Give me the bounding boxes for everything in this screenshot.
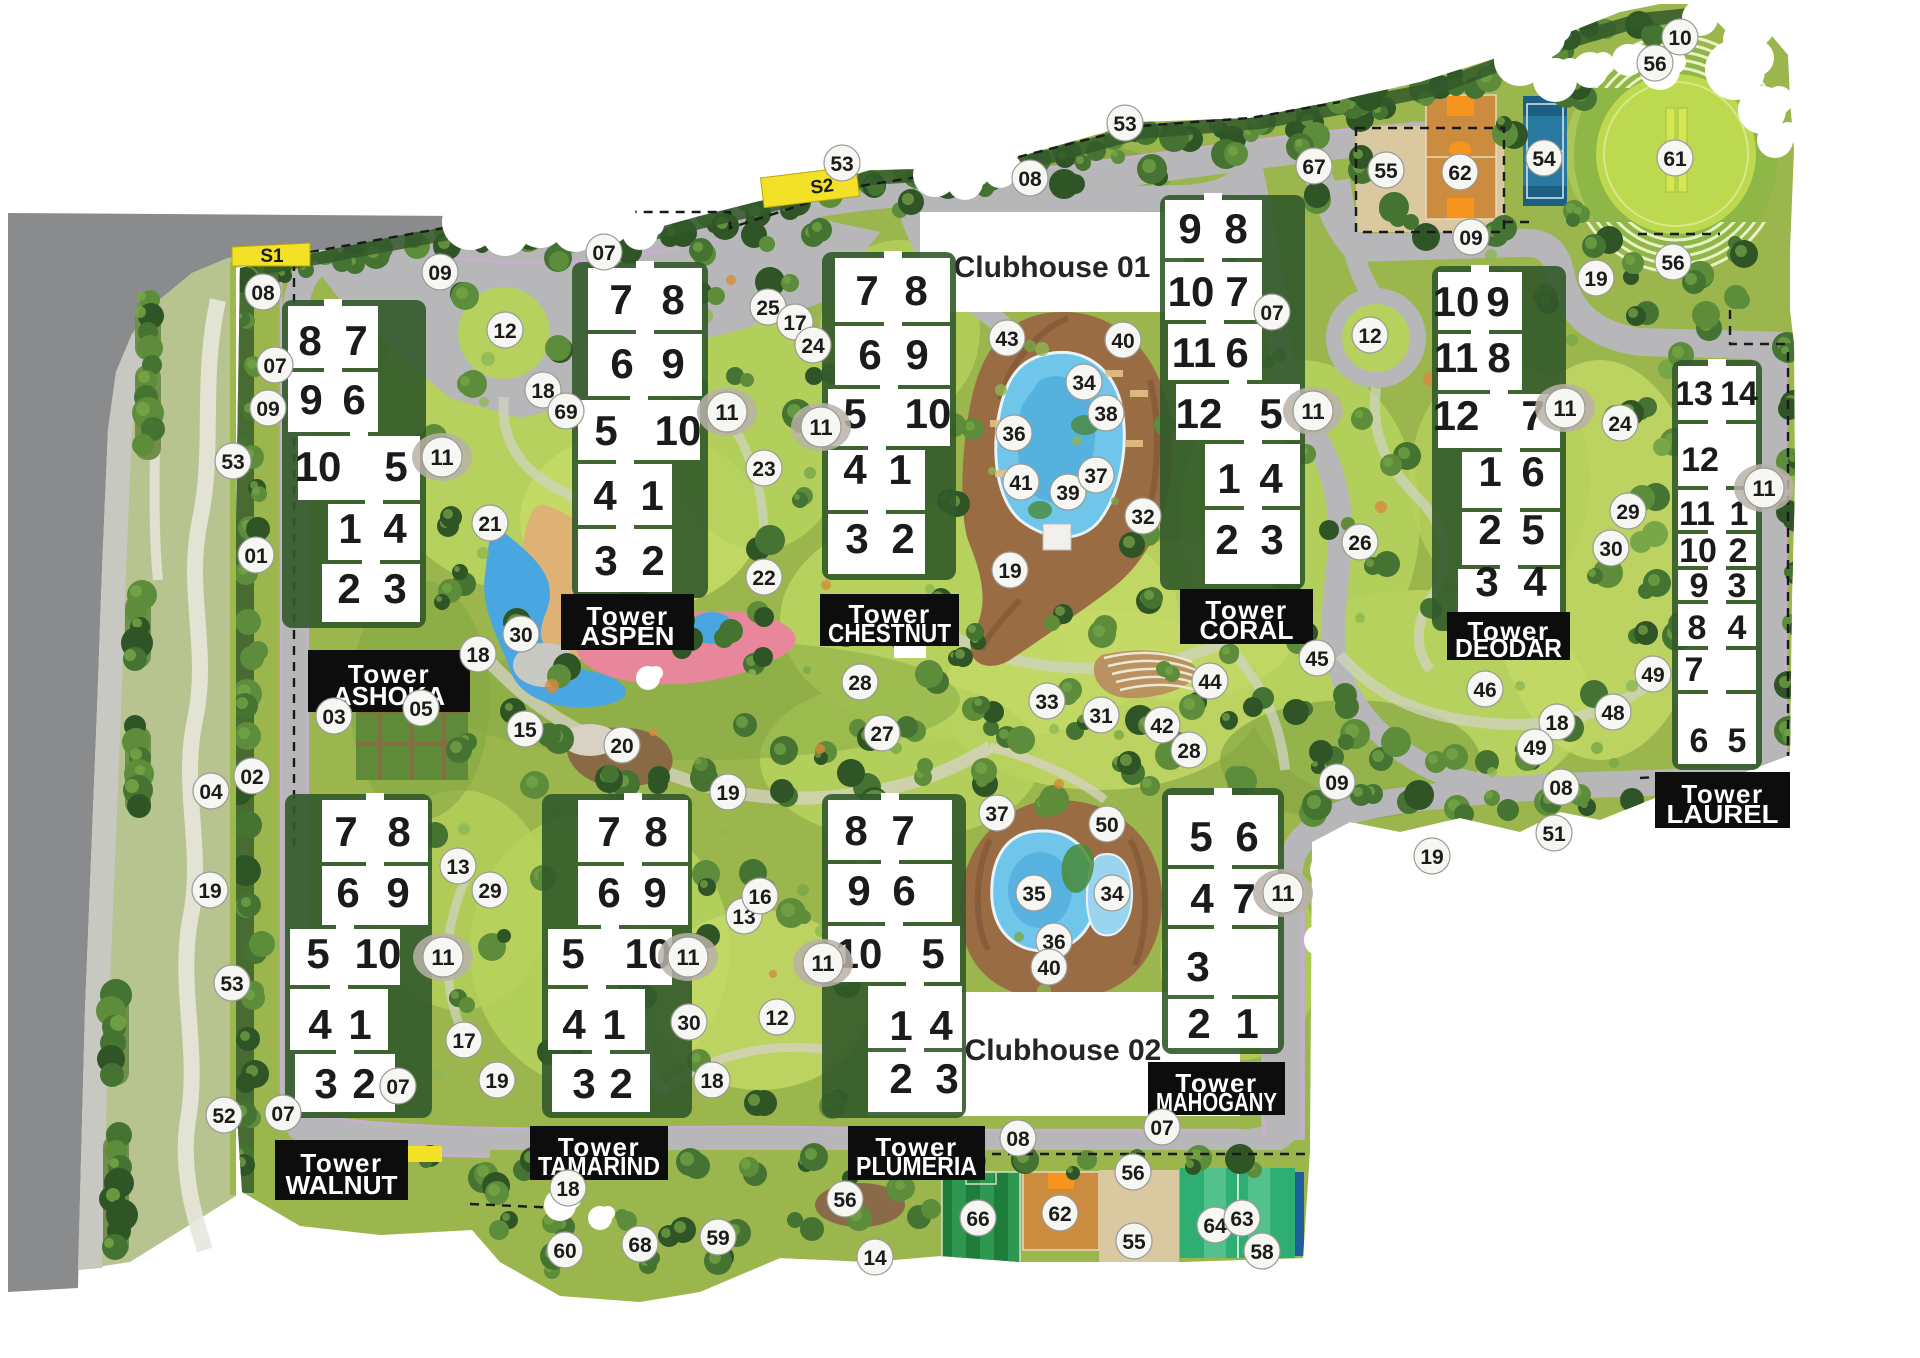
svg-text:42: 42 xyxy=(1150,715,1173,738)
svg-text:09: 09 xyxy=(428,262,451,285)
svg-text:28: 28 xyxy=(1177,740,1201,763)
svg-text:08: 08 xyxy=(1018,168,1042,191)
svg-text:07: 07 xyxy=(271,1103,294,1126)
svg-text:14: 14 xyxy=(863,1247,887,1270)
svg-text:10: 10 xyxy=(355,930,402,977)
svg-text:51: 51 xyxy=(1542,823,1566,846)
svg-text:30: 30 xyxy=(1599,538,1622,561)
svg-text:68: 68 xyxy=(628,1234,652,1257)
svg-text:2: 2 xyxy=(1215,516,1238,563)
svg-text:2: 2 xyxy=(1729,532,1748,570)
svg-text:07: 07 xyxy=(263,355,286,378)
svg-text:4: 4 xyxy=(1728,609,1747,647)
svg-text:3: 3 xyxy=(1260,516,1283,563)
svg-text:28: 28 xyxy=(848,672,872,695)
svg-text:6: 6 xyxy=(892,867,915,914)
svg-text:13: 13 xyxy=(1675,375,1713,413)
svg-text:1: 1 xyxy=(889,1002,912,1049)
svg-text:19: 19 xyxy=(716,782,739,805)
svg-text:03: 03 xyxy=(322,706,345,729)
svg-text:6: 6 xyxy=(858,331,881,378)
svg-text:34: 34 xyxy=(1072,372,1096,395)
svg-text:6: 6 xyxy=(1225,329,1248,376)
svg-text:6: 6 xyxy=(1690,722,1709,760)
svg-text:54: 54 xyxy=(1532,148,1556,171)
svg-text:MAHOGANY: MAHOGANY xyxy=(1156,1087,1277,1117)
svg-text:40: 40 xyxy=(1111,330,1134,353)
svg-text:49: 49 xyxy=(1523,737,1546,760)
svg-text:9: 9 xyxy=(1690,567,1709,605)
svg-text:11: 11 xyxy=(809,415,832,440)
svg-text:25: 25 xyxy=(756,297,780,320)
svg-text:1: 1 xyxy=(348,1001,371,1048)
svg-text:8: 8 xyxy=(387,808,410,855)
svg-text:3: 3 xyxy=(845,515,868,562)
svg-text:48: 48 xyxy=(1601,702,1625,725)
svg-text:11: 11 xyxy=(1434,334,1478,381)
svg-text:2: 2 xyxy=(609,1060,632,1107)
svg-text:11: 11 xyxy=(431,945,454,970)
svg-text:8: 8 xyxy=(644,808,667,855)
svg-text:7: 7 xyxy=(1685,651,1704,689)
svg-text:5: 5 xyxy=(1259,390,1282,437)
svg-text:07: 07 xyxy=(1150,1117,1173,1140)
svg-text:3: 3 xyxy=(314,1060,337,1107)
svg-text:3: 3 xyxy=(935,1055,958,1102)
svg-text:22: 22 xyxy=(752,567,775,590)
svg-text:53: 53 xyxy=(830,153,853,176)
svg-text:4: 4 xyxy=(308,1001,332,1048)
svg-text:11: 11 xyxy=(1301,399,1324,424)
svg-text:1: 1 xyxy=(640,472,663,519)
svg-text:10: 10 xyxy=(655,407,702,454)
svg-text:9: 9 xyxy=(1486,278,1509,325)
svg-text:02: 02 xyxy=(240,766,263,789)
svg-text:07: 07 xyxy=(1260,302,1283,325)
svg-text:69: 69 xyxy=(554,401,577,424)
svg-text:23: 23 xyxy=(752,458,775,481)
svg-text:32: 32 xyxy=(1131,506,1154,529)
svg-text:1: 1 xyxy=(1235,1000,1258,1047)
svg-text:8: 8 xyxy=(1688,609,1707,647)
svg-text:11: 11 xyxy=(430,445,453,470)
svg-text:12: 12 xyxy=(765,1007,788,1030)
svg-text:09: 09 xyxy=(1325,772,1348,795)
svg-text:56: 56 xyxy=(1661,252,1684,275)
svg-text:3: 3 xyxy=(383,565,406,612)
svg-text:05: 05 xyxy=(409,698,433,721)
svg-text:01: 01 xyxy=(244,545,268,568)
svg-text:40: 40 xyxy=(1037,957,1060,980)
svg-text:1: 1 xyxy=(888,446,911,493)
svg-text:3: 3 xyxy=(594,537,617,584)
svg-text:58: 58 xyxy=(1250,1241,1274,1264)
svg-text:3: 3 xyxy=(572,1060,595,1107)
svg-text:43: 43 xyxy=(995,328,1018,351)
svg-text:33: 33 xyxy=(1035,691,1058,714)
svg-text:50: 50 xyxy=(1095,814,1118,837)
svg-text:9: 9 xyxy=(386,869,409,916)
svg-text:8: 8 xyxy=(298,317,321,364)
svg-text:6: 6 xyxy=(610,340,633,387)
svg-text:18: 18 xyxy=(700,1070,724,1093)
svg-text:11: 11 xyxy=(715,400,738,425)
svg-text:31: 31 xyxy=(1089,705,1113,728)
svg-text:6: 6 xyxy=(336,869,359,916)
svg-text:12: 12 xyxy=(1358,325,1381,348)
svg-text:17: 17 xyxy=(452,1030,475,1053)
svg-text:37: 37 xyxy=(1084,465,1107,488)
svg-text:5: 5 xyxy=(384,443,407,490)
svg-text:16: 16 xyxy=(748,886,771,909)
svg-text:10: 10 xyxy=(1433,278,1480,325)
svg-text:19: 19 xyxy=(485,1070,508,1093)
svg-text:10: 10 xyxy=(905,390,952,437)
svg-text:29: 29 xyxy=(478,880,501,903)
svg-text:37: 37 xyxy=(985,803,1008,826)
svg-text:39: 39 xyxy=(1056,482,1079,505)
svg-text:14: 14 xyxy=(1720,375,1758,413)
svg-text:10: 10 xyxy=(1168,268,1215,315)
svg-text:7: 7 xyxy=(609,276,632,323)
svg-text:DEODAR: DEODAR xyxy=(1455,633,1562,663)
svg-text:2: 2 xyxy=(337,565,360,612)
svg-text:1: 1 xyxy=(338,505,361,552)
svg-text:8: 8 xyxy=(1487,334,1510,381)
svg-text:18: 18 xyxy=(556,1178,580,1201)
svg-text:Clubhouse 01: Clubhouse 01 xyxy=(954,251,1151,284)
svg-text:53: 53 xyxy=(221,451,244,474)
svg-text:13: 13 xyxy=(446,856,469,879)
svg-text:60: 60 xyxy=(553,1240,576,1263)
svg-text:CHESTNUT: CHESTNUT xyxy=(828,618,951,648)
svg-text:1: 1 xyxy=(1478,448,1501,495)
svg-text:09: 09 xyxy=(1459,227,1482,250)
svg-text:4: 4 xyxy=(383,505,407,552)
svg-text:S2: S2 xyxy=(809,175,835,199)
svg-text:2: 2 xyxy=(352,1060,375,1107)
svg-text:9: 9 xyxy=(643,869,666,916)
svg-text:6: 6 xyxy=(597,869,620,916)
svg-text:56: 56 xyxy=(1643,53,1666,76)
svg-text:4: 4 xyxy=(1190,875,1214,922)
svg-text:45: 45 xyxy=(1305,648,1329,671)
svg-text:8: 8 xyxy=(904,267,927,314)
svg-text:5: 5 xyxy=(921,930,944,977)
svg-text:7: 7 xyxy=(1225,268,1248,315)
svg-text:34: 34 xyxy=(1100,883,1124,906)
svg-text:12: 12 xyxy=(1433,392,1480,439)
svg-text:2: 2 xyxy=(1187,1000,1210,1047)
svg-text:18: 18 xyxy=(1545,712,1569,735)
svg-text:53: 53 xyxy=(1113,113,1136,136)
svg-text:6: 6 xyxy=(1235,813,1258,860)
svg-text:18: 18 xyxy=(466,644,490,667)
svg-text:30: 30 xyxy=(677,1012,700,1035)
svg-text:46: 46 xyxy=(1473,679,1496,702)
svg-text:11: 11 xyxy=(1752,476,1775,501)
svg-text:3: 3 xyxy=(1728,567,1747,605)
svg-text:67: 67 xyxy=(1302,156,1325,179)
svg-text:2: 2 xyxy=(891,515,914,562)
svg-text:6: 6 xyxy=(1521,448,1544,495)
svg-text:56: 56 xyxy=(1121,1162,1144,1185)
svg-text:7: 7 xyxy=(1232,875,1255,922)
svg-text:Clubhouse 02: Clubhouse 02 xyxy=(965,1034,1162,1067)
svg-text:1: 1 xyxy=(1217,455,1240,502)
svg-text:5: 5 xyxy=(306,930,329,977)
svg-text:8: 8 xyxy=(661,276,684,323)
svg-text:09: 09 xyxy=(256,398,279,421)
svg-text:08: 08 xyxy=(1006,1128,1030,1151)
svg-text:9: 9 xyxy=(661,340,684,387)
svg-text:12: 12 xyxy=(493,320,516,343)
svg-text:WALNUT: WALNUT xyxy=(286,1170,398,1200)
svg-text:4: 4 xyxy=(562,1001,586,1048)
svg-text:9: 9 xyxy=(1178,205,1201,252)
svg-text:3: 3 xyxy=(1186,943,1209,990)
svg-text:53: 53 xyxy=(220,973,243,996)
svg-text:55: 55 xyxy=(1122,1231,1146,1254)
svg-text:7: 7 xyxy=(334,808,357,855)
svg-text:08: 08 xyxy=(251,282,275,305)
svg-text:07: 07 xyxy=(386,1076,409,1099)
svg-text:1: 1 xyxy=(602,1001,625,1048)
svg-text:24: 24 xyxy=(1608,413,1632,436)
svg-text:2: 2 xyxy=(1478,506,1501,553)
svg-text:LAUREL: LAUREL xyxy=(1667,799,1779,829)
svg-text:29: 29 xyxy=(1616,501,1639,524)
svg-text:10: 10 xyxy=(1668,27,1691,50)
svg-text:19: 19 xyxy=(198,880,221,903)
svg-text:61: 61 xyxy=(1663,148,1687,171)
svg-text:08: 08 xyxy=(1549,777,1573,800)
svg-text:6: 6 xyxy=(342,376,365,423)
svg-text:19: 19 xyxy=(1584,268,1607,291)
svg-text:5: 5 xyxy=(1728,722,1747,760)
svg-text:8: 8 xyxy=(844,807,867,854)
svg-text:5: 5 xyxy=(561,930,584,977)
svg-text:19: 19 xyxy=(998,560,1021,583)
svg-text:21: 21 xyxy=(478,513,502,536)
svg-text:8: 8 xyxy=(1224,205,1247,252)
svg-text:62: 62 xyxy=(1448,162,1471,185)
svg-text:7: 7 xyxy=(891,807,914,854)
svg-text:3: 3 xyxy=(1475,558,1498,605)
svg-text:CORAL: CORAL xyxy=(1200,615,1294,645)
svg-text:7: 7 xyxy=(597,808,620,855)
svg-text:35: 35 xyxy=(1022,883,1046,906)
svg-text:62: 62 xyxy=(1048,1203,1071,1226)
svg-text:49: 49 xyxy=(1641,664,1664,687)
svg-text:30: 30 xyxy=(509,624,532,647)
svg-text:27: 27 xyxy=(870,723,893,746)
svg-text:9: 9 xyxy=(905,331,928,378)
svg-text:52: 52 xyxy=(212,1105,235,1128)
svg-text:38: 38 xyxy=(1094,403,1118,426)
svg-text:4: 4 xyxy=(929,1002,953,1049)
svg-text:07: 07 xyxy=(592,242,615,265)
svg-text:7: 7 xyxy=(344,317,367,364)
svg-text:5: 5 xyxy=(1189,813,1212,860)
svg-text:66: 66 xyxy=(966,1208,989,1231)
svg-text:63: 63 xyxy=(1230,1208,1253,1231)
svg-text:56: 56 xyxy=(833,1189,856,1212)
svg-text:5: 5 xyxy=(594,407,617,454)
svg-text:4: 4 xyxy=(1259,455,1283,502)
svg-text:9: 9 xyxy=(847,867,870,914)
svg-text:4: 4 xyxy=(1523,558,1547,605)
svg-text:24: 24 xyxy=(801,335,825,358)
svg-text:19: 19 xyxy=(1420,846,1443,869)
svg-text:11: 11 xyxy=(676,945,699,970)
svg-text:4: 4 xyxy=(843,446,867,493)
svg-text:04: 04 xyxy=(199,781,223,804)
svg-text:55: 55 xyxy=(1374,160,1398,183)
svg-text:4: 4 xyxy=(593,472,617,519)
svg-text:11: 11 xyxy=(811,951,834,976)
svg-text:12: 12 xyxy=(1681,441,1719,479)
svg-text:41: 41 xyxy=(1009,472,1033,495)
svg-text:11: 11 xyxy=(1553,396,1576,421)
svg-text:11: 11 xyxy=(1172,329,1216,376)
svg-text:44: 44 xyxy=(1198,671,1222,694)
svg-text:9: 9 xyxy=(299,376,322,423)
svg-text:PLUMERIA: PLUMERIA xyxy=(856,1151,977,1181)
svg-text:5: 5 xyxy=(1521,506,1544,553)
svg-text:36: 36 xyxy=(1002,423,1025,446)
svg-text:11: 11 xyxy=(1271,881,1294,906)
svg-text:59: 59 xyxy=(706,1227,729,1250)
svg-text:7: 7 xyxy=(855,267,878,314)
svg-text:15: 15 xyxy=(513,719,537,742)
svg-text:ASPEN: ASPEN xyxy=(581,621,675,651)
svg-text:2: 2 xyxy=(641,537,664,584)
svg-text:10: 10 xyxy=(295,443,342,490)
svg-text:12: 12 xyxy=(1176,390,1223,437)
svg-text:S1: S1 xyxy=(260,246,284,267)
svg-text:26: 26 xyxy=(1348,532,1371,555)
svg-text:2: 2 xyxy=(889,1055,912,1102)
svg-text:20: 20 xyxy=(610,735,633,758)
